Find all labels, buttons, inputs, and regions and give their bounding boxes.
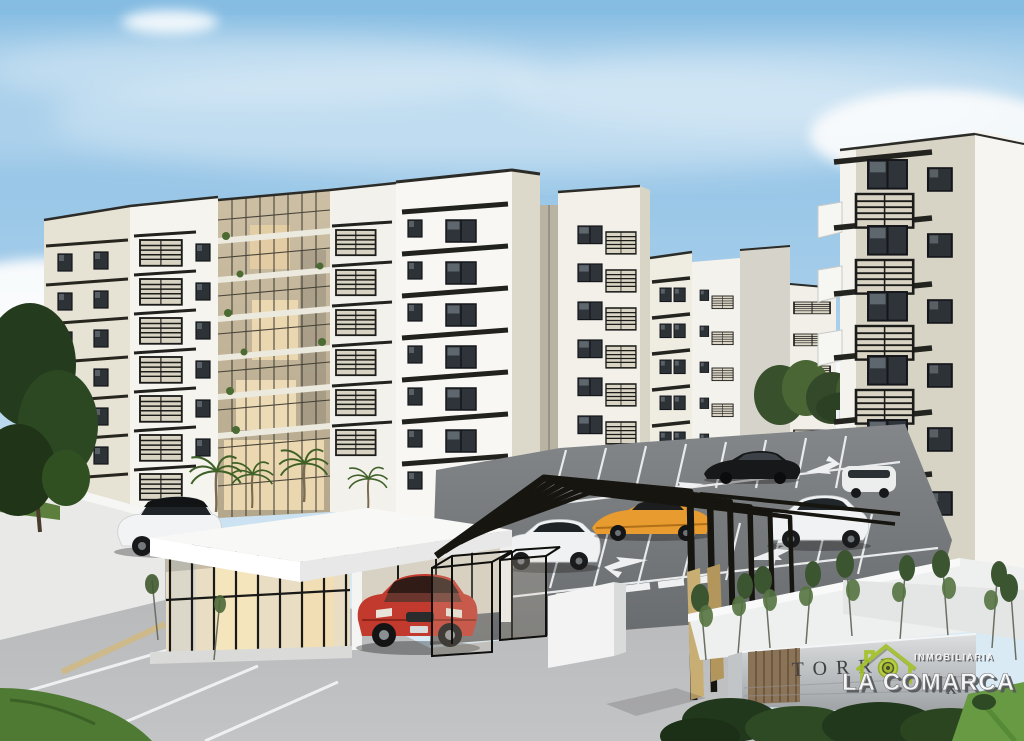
building-left-main: [44, 183, 396, 528]
corner-column: [975, 130, 1024, 578]
glass-atrium: [218, 190, 330, 518]
white-plinth-wall: [548, 582, 614, 668]
watermark-logo: INMOBILIARIA INMOBILIARIA LA COMARCA LA …: [842, 646, 1018, 699]
sign-end-cap: [728, 652, 742, 706]
watermark-tagline: INMOBILIARIA: [914, 652, 995, 662]
watermark-brand: LA COMARCA: [842, 669, 1015, 696]
render-image: TORRE X INMOBILIARIA INMOBILIARIA LA COM…: [0, 0, 1024, 741]
